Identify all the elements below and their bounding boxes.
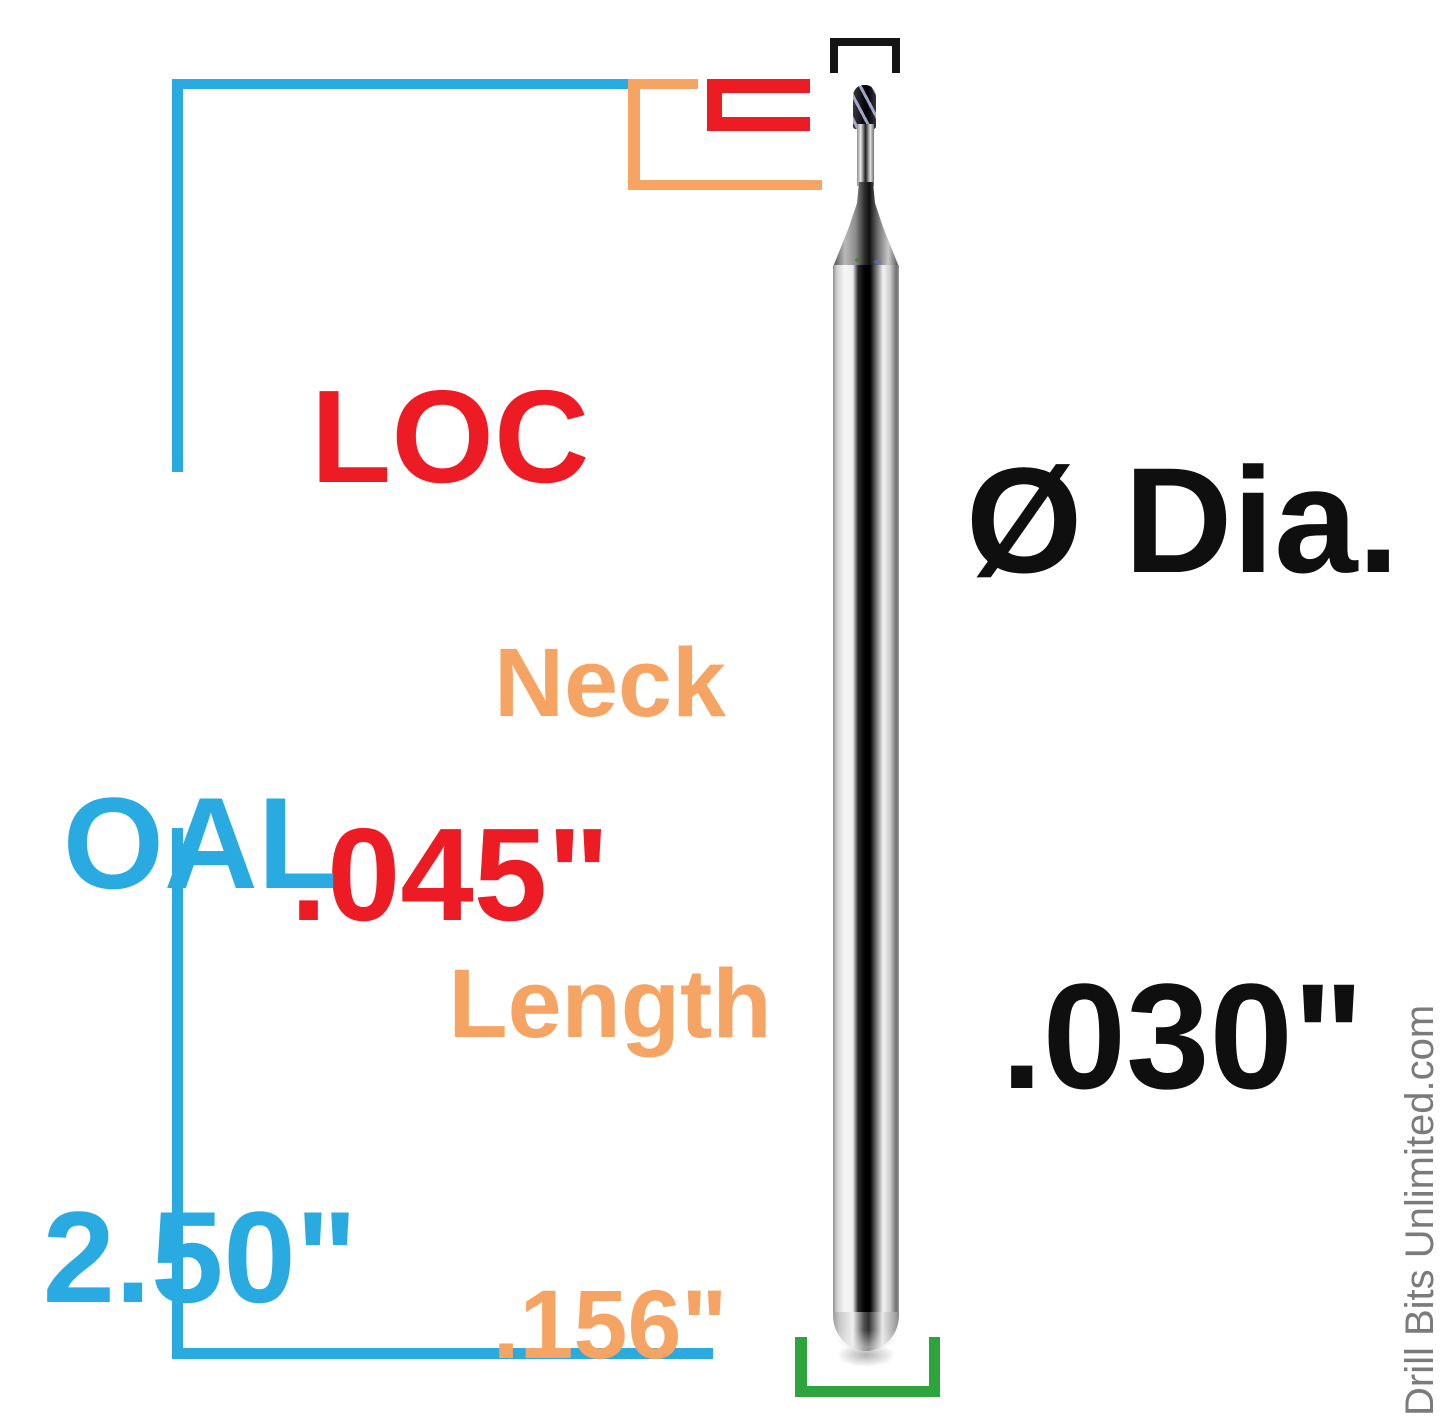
endmill-taper (833, 182, 899, 267)
oal-dimension-label: OAL 2.50" (10, 498, 390, 1419)
neck-dimension-label: Neck Length .156" (420, 415, 800, 1419)
endmill-dimension-diagram: LOC .045" Ø Dia. .030" Neck Length .156"… (0, 0, 1445, 1419)
oal-bracket-vertical-upper (172, 79, 183, 472)
watermark-text: Drill Bits Unlimited.com (1398, 1004, 1442, 1416)
endmill-shank (833, 265, 899, 1315)
loc-bracket-bottom-line (707, 117, 810, 131)
endmill-reflection-green (855, 258, 861, 262)
neck-label-line1: Neck (420, 629, 800, 736)
endmill-reflection-blue (874, 260, 881, 264)
endmill-flute-tip (853, 85, 876, 129)
dia-bracket-top-line (830, 38, 900, 46)
endmill-neck (857, 124, 874, 186)
dia-value: .030" (920, 950, 1445, 1122)
dia-label: Ø Dia. (920, 434, 1445, 606)
oal-label: OAL (10, 774, 390, 912)
oal-value: 2.50" (10, 1188, 390, 1326)
neck-value: .156" (420, 1271, 800, 1378)
neck-label-line2: Length (420, 950, 800, 1057)
dia-bracket-right-tick (892, 38, 900, 73)
shank-label: Ø Shank (935, 1406, 1400, 1419)
shank-bracket-bottom-line (795, 1386, 940, 1397)
loc-bracket-top-line (707, 79, 810, 93)
shank-dimension-label: Ø Shank 1/8" (935, 1132, 1400, 1419)
